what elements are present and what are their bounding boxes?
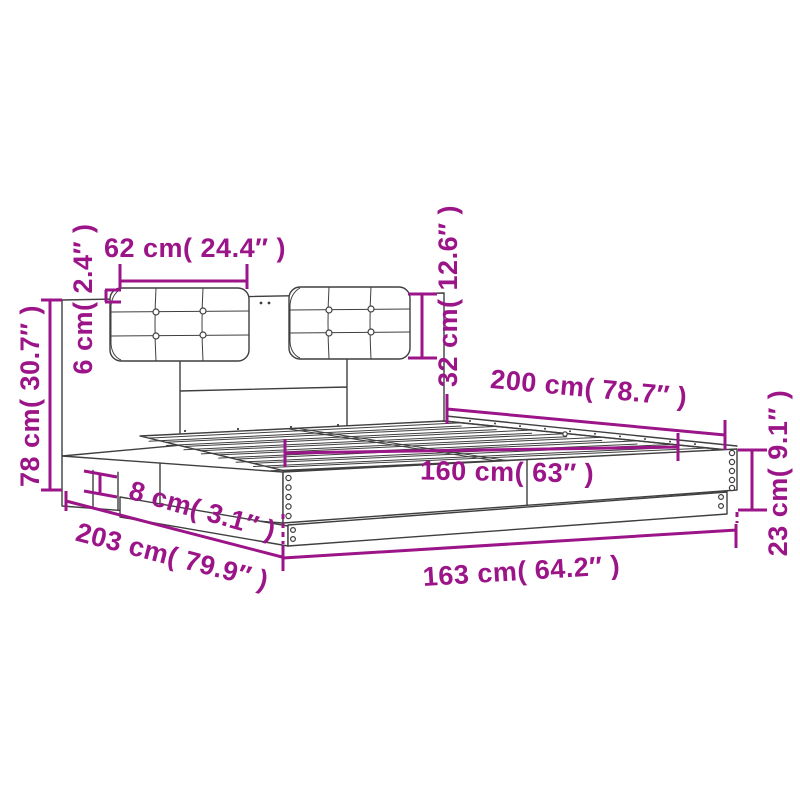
dim-label-frame-height: 23 cm( 9.1″ ) [763,390,793,557]
dim-frame-height: 23 cm( 9.1″ ) [738,390,793,557]
headboard-cushion-right [289,287,410,359]
dim-label-cushion-height: 32 cm( 12.6″ ) [433,205,463,387]
bed-frame-dimension-diagram: 62 cm( 24.4″ ) 6 cm( 2.4″ ) 78 cm( 30.7″… [0,0,800,800]
dim-cushion-width: 62 cm( 24.4″ ) [104,233,286,289]
headboard-cushion-left [110,288,249,361]
dim-label-cushion-thickness: 6 cm( 2.4″ ) [68,224,98,375]
diagram-canvas: 62 cm( 24.4″ ) 6 cm( 2.4″ ) 78 cm( 30.7″… [0,0,800,800]
dim-label-headboard-height: 78 cm( 30.7″ ) [15,305,45,487]
dim-label-cushion-width: 62 cm( 24.4″ ) [104,233,286,263]
dim-label-total-width: 163 cm( 64.2″ ) [422,550,621,592]
dim-label-slat-area-width: 160 cm( 63″ ) [420,455,595,488]
dim-headboard-height: 78 cm( 30.7″ ) [15,300,62,490]
dim-label-slat-area-length: 200 cm( 78.7″ ) [489,364,688,412]
